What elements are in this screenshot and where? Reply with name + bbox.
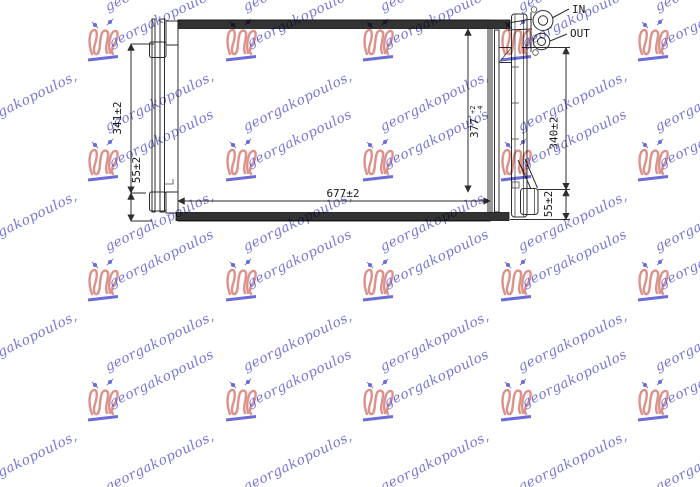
- left-side-plate: [150, 19, 179, 213]
- port-in-label: IN: [572, 3, 585, 16]
- dim-right-height-label: 340±2: [548, 116, 561, 149]
- dim-right-offset-label: 55±2: [542, 191, 555, 218]
- core-top-header-bar: [178, 20, 510, 29]
- port-in-circle: [533, 11, 553, 31]
- port-out-label: OUT: [570, 27, 590, 40]
- dim-drier-height-value: 377: [468, 118, 481, 138]
- receiver-drier: [499, 14, 538, 217]
- right-end-tank: [495, 30, 500, 212]
- dim-left-offset-label: 55±2: [130, 157, 143, 184]
- drawing-svg: 341±2 55±2: [0, 0, 700, 487]
- dimension-drier-height: 377 +2 -4: [468, 29, 485, 192]
- condenser-technical-drawing: georgakopoulos,georgakopoulos,georgakopo…: [0, 0, 700, 487]
- dim-drier-height-tol-minus: -4: [477, 106, 485, 114]
- dimension-left-offset: 55±2: [130, 157, 152, 221]
- core-bottom-header-bar: [176, 213, 509, 221]
- dimension-core-width: 677±2: [178, 187, 490, 201]
- port-labels: IN OUT: [550, 3, 590, 41]
- dim-core-height-label: 341±2: [111, 101, 124, 134]
- dim-core-width-label: 677±2: [326, 187, 359, 200]
- dimension-right-offset: 55±2: [510, 190, 570, 220]
- drier-bottom-arm: [518, 160, 531, 189]
